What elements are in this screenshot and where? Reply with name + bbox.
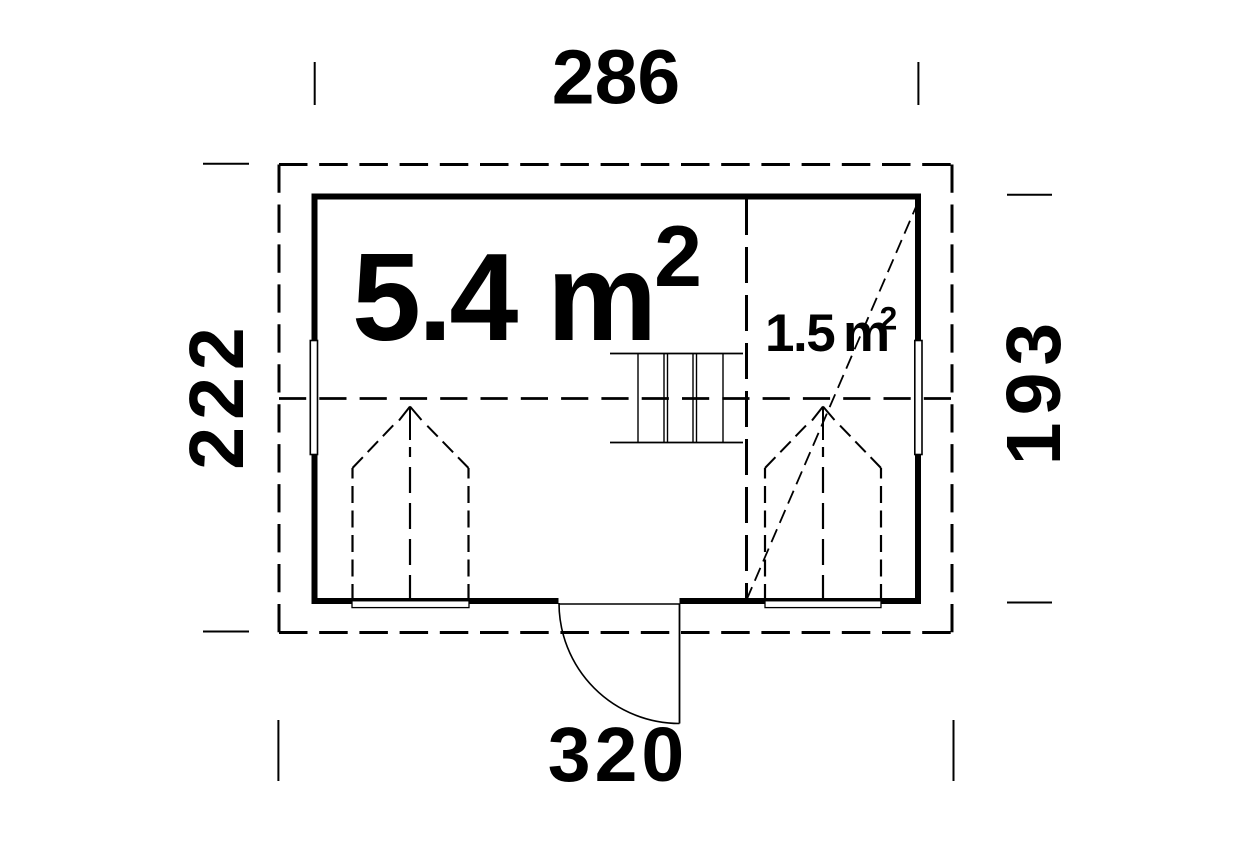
svg-text:320: 320 — [548, 712, 688, 798]
svg-text:286: 286 — [552, 34, 680, 120]
svg-text:222: 222 — [174, 320, 260, 469]
svg-text:1.5m2: 1.5m2 — [765, 301, 897, 364]
svg-text:193: 193 — [991, 316, 1077, 465]
svg-text:5.4 m2: 5.4 m2 — [352, 209, 699, 367]
